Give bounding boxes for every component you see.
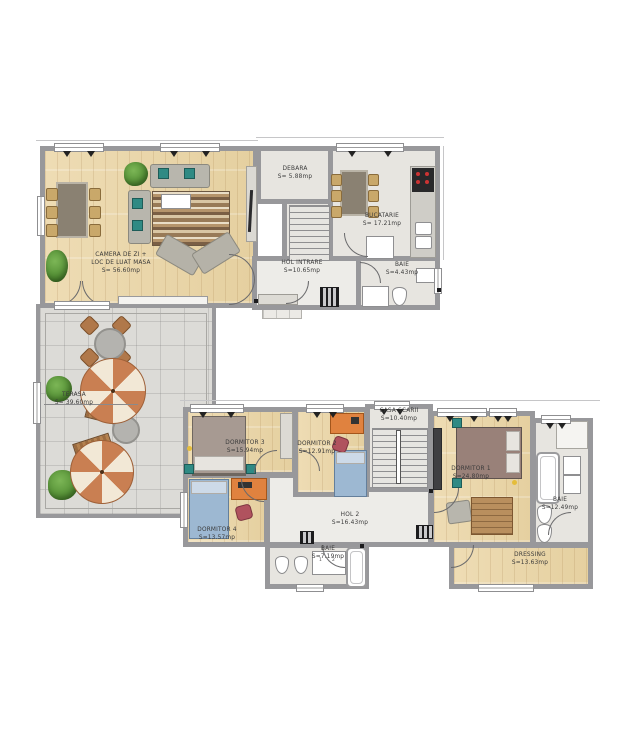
room-name: BAIE (378, 262, 426, 270)
floor-plan: CAMERA DE ZI + LOC DE LUAT MASA S= 56.60… (0, 0, 624, 730)
window (489, 408, 517, 417)
kitchen-chair (331, 206, 342, 218)
stairs-divider (396, 430, 401, 484)
dining-chair (46, 206, 58, 219)
room-label-living: CAMERA DE ZI + LOC DE LUAT MASA S= 56.60… (66, 252, 176, 275)
room-name: HOL 2 (318, 512, 382, 520)
kitchen-chair (331, 174, 342, 186)
lamp (187, 446, 192, 451)
room-label-baie-mica: BAIE S=7.19mp (306, 546, 350, 562)
room-area: S=13.63mp (498, 560, 562, 568)
room-name: BAIE (306, 546, 350, 554)
room-name: HOL INTRARE (262, 260, 342, 268)
room-name: DEBARA (260, 166, 330, 174)
window (190, 404, 244, 413)
stove-burner (416, 172, 420, 176)
room-label-dressing: DRESSING S=13.63mp (498, 552, 562, 568)
sofa-pillow (184, 168, 195, 179)
kitchen-chair (331, 190, 342, 202)
room-name: TERASA (44, 392, 104, 400)
room-label-dormitor2: DORMITOR 2 S=12.91mp (288, 441, 346, 457)
terrace-door-opening (54, 301, 110, 310)
room-label-dormitor4: DORMITOR 4 S=13.57mp (184, 527, 250, 543)
radiator (300, 531, 314, 544)
room-label-dormitor3: DORMITOR 3 S=15.94mp (210, 440, 280, 456)
room-label-dormitor1: DORMITOR 1 S=24.80mp (436, 466, 506, 482)
eave-line (36, 140, 258, 141)
room-name: CAMERA DE ZI + (66, 252, 176, 260)
vanity-number: 2 (332, 558, 335, 563)
room-area: S=7.19mp (306, 554, 350, 562)
dining-table (56, 182, 88, 238)
window (541, 415, 571, 424)
room-area: S= 39.60mp (44, 400, 104, 408)
open-wardrobe (471, 497, 513, 535)
room-area: S=10.65mp (262, 268, 342, 276)
wall-mark (254, 299, 258, 303)
umbrella (80, 358, 146, 424)
room-area: S=15.94mp (210, 448, 280, 456)
stove-burner (425, 172, 429, 176)
room-name: BUCATARIE (346, 213, 418, 221)
radiator (320, 287, 339, 307)
room-label-debara: DEBARA S= 5.88mp (260, 166, 330, 182)
room-label-baie-ground: BAIE S=4.43mp (378, 262, 426, 278)
kitchen-island (366, 236, 394, 259)
kitchen-table (340, 170, 368, 216)
sofa-pillow (158, 168, 169, 179)
wall-mark (437, 288, 441, 292)
vanity-number: 1 (319, 558, 322, 563)
room-label-bucatarie: BUCATARIE S= 17.21mp (346, 213, 418, 229)
room-label-terasa: TERASA S= 39.60mp (44, 392, 104, 408)
room-label-hol-intrare: HOL INTRARE S=10.65mp (262, 260, 342, 276)
window (478, 584, 534, 592)
entry-steps (262, 310, 302, 319)
room-name: BAIE (534, 497, 586, 505)
bath-sink (563, 456, 581, 475)
eave-line (256, 137, 444, 138)
dining-chair (89, 188, 101, 201)
nightstand (184, 464, 194, 474)
room-area: S=4.43mp (378, 270, 426, 278)
stove-burner (416, 180, 420, 184)
room-area: S= 17.21mp (346, 221, 418, 229)
coffee-table (161, 194, 191, 209)
shower (362, 286, 389, 307)
kitchen-sink (415, 236, 432, 249)
window (296, 584, 324, 592)
bed-pillow (194, 456, 244, 471)
room-name: DORMITOR 3 (210, 440, 280, 448)
desk-laptop (351, 417, 359, 424)
window (306, 404, 344, 413)
dining-chair (89, 224, 101, 237)
room-name: DORMITOR 2 (288, 441, 346, 449)
room-area: S=16.43mp (318, 520, 382, 528)
umbrella (70, 440, 134, 504)
dining-chair (89, 206, 101, 219)
room-label-hol2: HOL 2 S=16.43mp (318, 512, 382, 528)
room-area: S= 5.88mp (260, 174, 330, 182)
bath-sink (563, 475, 581, 494)
radiator (416, 525, 433, 539)
terrace-table (94, 328, 126, 360)
room-name: LOC DE LUAT MASA (66, 260, 176, 268)
room-area: S= 56.60mp (66, 268, 176, 276)
bed-pillow (191, 481, 227, 494)
stove-burner (425, 180, 429, 184)
bed-pillow (506, 453, 520, 473)
dining-chair (46, 188, 58, 201)
room-area: S=12.91mp (288, 449, 346, 457)
kitchen-chair (368, 174, 379, 186)
kitchen-chair (368, 190, 379, 202)
window (336, 143, 404, 152)
window (33, 382, 41, 424)
lamp (512, 480, 517, 485)
window (180, 492, 188, 528)
room-label-baie-mare: BAIE S=12.49mp (534, 497, 586, 513)
wall-mark (360, 544, 364, 548)
room-name: DORMITOR 1 (436, 466, 506, 474)
room-name: DORMITOR 4 (184, 527, 250, 535)
room-name: CASA SCARII (366, 408, 432, 416)
window (37, 196, 45, 236)
window (437, 408, 487, 417)
sideboard (118, 296, 208, 305)
stairs-ground (289, 205, 330, 261)
room-area: S=24.80mp (436, 474, 506, 482)
room-area: S=12.49mp (534, 505, 586, 513)
room-area: S=13.57mp (184, 535, 250, 543)
room-name: DRESSING (498, 552, 562, 560)
window (160, 143, 220, 152)
wall-mark (429, 489, 433, 493)
sofa-pillow (132, 198, 143, 209)
eave-line (443, 146, 444, 260)
window (54, 143, 104, 152)
bed-pillow (506, 431, 520, 451)
dining-chair (46, 224, 58, 237)
sofa-pillow (132, 220, 143, 231)
room-area: S=10.40mp (366, 416, 432, 424)
room-label-casa-scarii: CASA SCARII S=10.40mp (366, 408, 432, 424)
